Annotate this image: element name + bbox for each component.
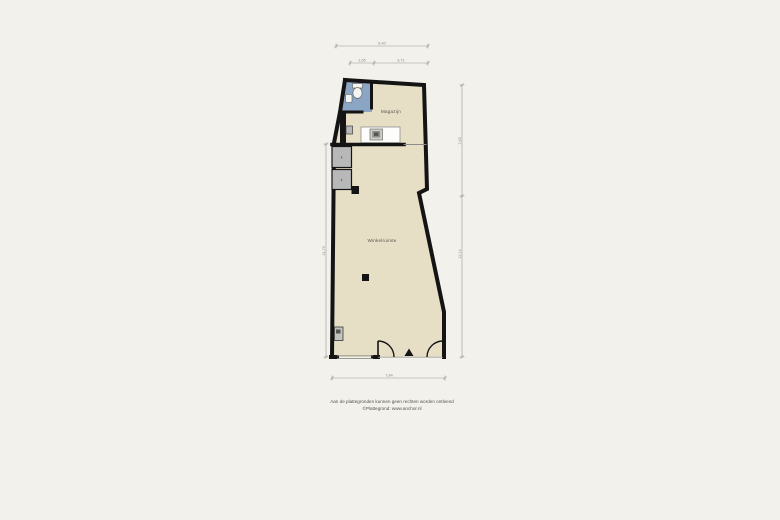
- toilet-icon: [353, 88, 362, 99]
- floor-plan-svg: k k Magazijn Winkelruimte: [0, 0, 780, 520]
- room-label-winkelruimte: Winkelruimte: [368, 238, 397, 243]
- dim-left-total: 14,79: [322, 246, 326, 256]
- dim-top-seg2: 3,71: [397, 59, 404, 63]
- footer: Aan de plattegronden kunnen geen rechten…: [330, 399, 454, 411]
- meter-box-detail: [336, 330, 341, 334]
- meter-box-icon: [335, 327, 344, 341]
- pillar: [352, 186, 360, 194]
- dim-top-total: 6,40: [378, 42, 385, 46]
- dim-right-bottom: 11,14: [458, 249, 462, 258]
- dim-bottom-total: 7,84: [385, 374, 392, 378]
- room-label-magazijn: Magazijn: [381, 109, 401, 114]
- dim-right-top: 7,63: [458, 137, 462, 144]
- winkelruimte-floor: [332, 80, 444, 357]
- duct-box: [346, 126, 353, 134]
- floorplan-page: k k Magazijn Winkelruimte: [0, 0, 780, 520]
- pillar: [362, 274, 369, 281]
- duct-wall-stub: [340, 112, 346, 143]
- kitchenette-icon-core: [374, 133, 378, 136]
- dim-top-seg1: 1,65: [358, 59, 365, 63]
- footer-credit-line2: ©Plattegrond: www.anchor.nl: [362, 405, 421, 411]
- footer-disclaimer-line1: Aan de plattegronden kunnen geen rechten…: [330, 399, 454, 404]
- sink-icon: [346, 95, 353, 103]
- kitchenette: [361, 127, 400, 143]
- storefront-window: [337, 356, 373, 359]
- floor-area: [332, 80, 444, 357]
